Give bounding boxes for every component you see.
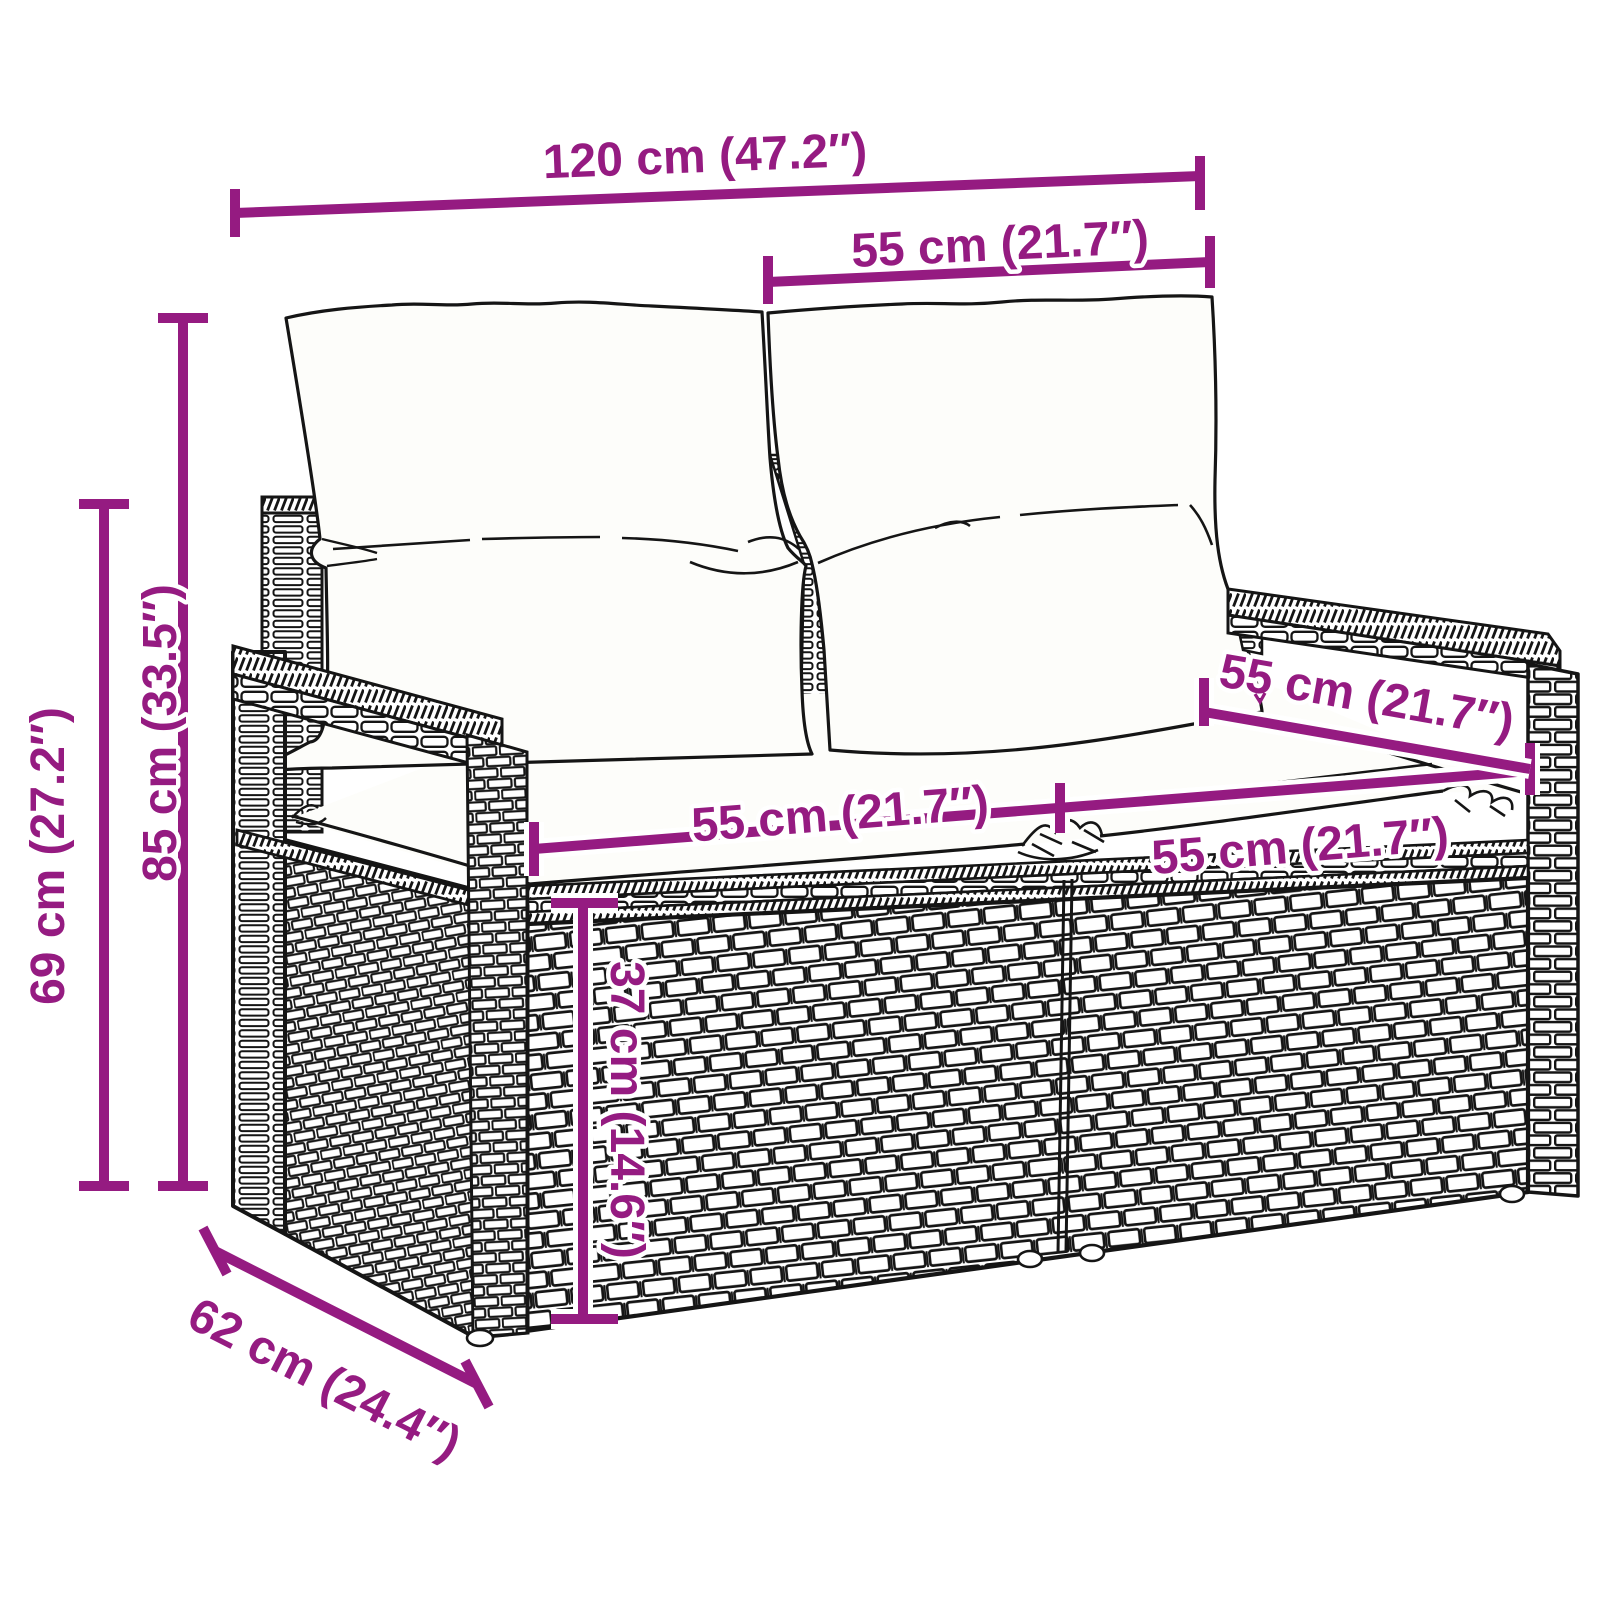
svg-text:85 cm (33.5″): 85 cm (33.5″)	[134, 584, 187, 882]
svg-text:69 cm (27.2″): 69 cm (27.2″)	[22, 707, 75, 1005]
svg-text:37 cm (14.6″): 37 cm (14.6″)	[600, 961, 653, 1259]
